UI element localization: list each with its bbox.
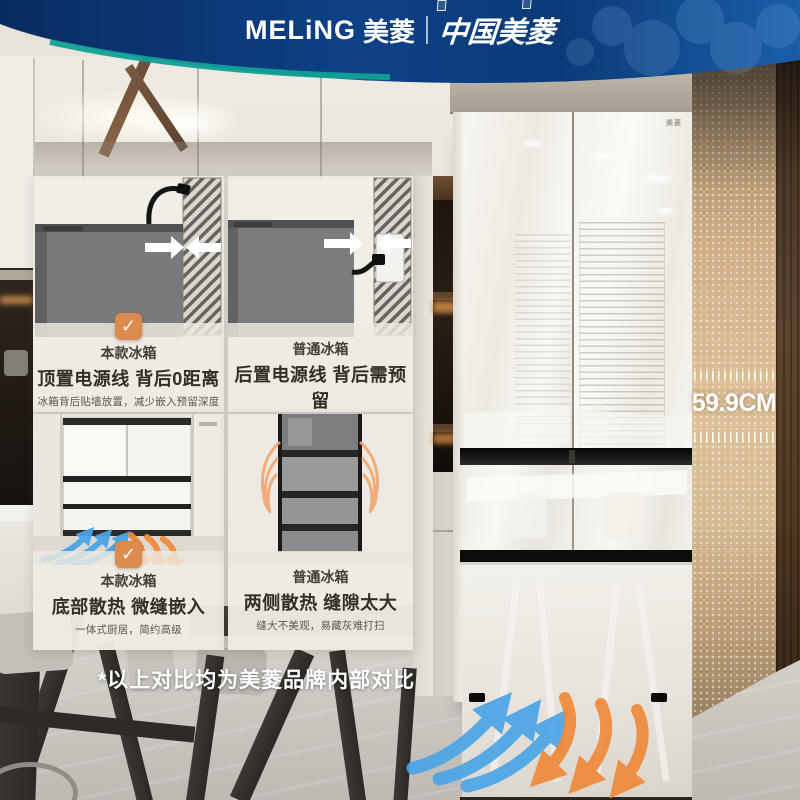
fridge-handle-strip [460, 550, 692, 562]
ruler-ticks-icon [694, 371, 774, 380]
compare-panel-rear-power: 普通冰箱 后置电源线 背后需预留 需预留电源线材及插座厚度 [228, 176, 413, 412]
counter-top [0, 505, 33, 521]
chair-reflection [603, 492, 645, 540]
depth-measurement: 59.9CM [690, 389, 778, 418]
side-panel-shadow [692, 60, 776, 190]
brand-sub-text: 中国美菱 [437, 17, 556, 49]
panel-title: 底部散热 微缝嵌入 [35, 593, 222, 619]
fridge-brand-logo: 美菱 [666, 118, 682, 128]
power-cord [149, 189, 179, 224]
wall-hatch [183, 178, 221, 335]
check-glyph: ✓ [121, 544, 136, 564]
ordinary-fridge [282, 414, 358, 552]
brand-logo-cn: 美菱 [363, 12, 415, 49]
check-icon: ✓ [115, 313, 142, 340]
disclaimer-text: *以上对比均为美菱品牌内部对比 [98, 664, 415, 694]
pendant-light-glow [130, 100, 240, 146]
brand-logo-en: MELiNG [245, 15, 356, 46]
cabinet-light [0, 296, 33, 304]
panel-label: 本款冰箱 [35, 343, 222, 363]
panel-title: 后置电源线 背后需预留 [230, 361, 411, 413]
panel-label: 本款冰箱 [35, 571, 222, 591]
light-reflection [639, 172, 675, 185]
panel-desc: 缝大不美观，易藏灰难打扫 [230, 618, 411, 633]
mid-wall [413, 176, 433, 696]
power-plug [372, 254, 385, 265]
hero-refrigerator: 美菱 [453, 112, 692, 702]
wall-shadow [18, 142, 432, 178]
warm-air-arrows [545, 698, 643, 782]
fridge-handle-gap [569, 450, 575, 463]
coffee-cabinet [0, 268, 33, 508]
fridge-side [453, 112, 462, 702]
compare-panel-bottom-heat: ✓ 本款冰箱 底部散热 微缝嵌入 一体式厨居，简约高级 [33, 414, 224, 650]
panel-caption: ✓ 本款冰箱 顶置电源线 背后0距离 冰箱背后贴墙放置，减少嵌入预留深度 [33, 323, 224, 412]
panel-caption: 普通冰箱 两侧散热 缝隙太大 缝大不美观，易藏灰难打扫 [228, 551, 413, 650]
light-reflection [519, 138, 547, 149]
light-reflection [589, 150, 621, 162]
illustration-side-heat [228, 414, 413, 565]
airflow-arrows [405, 672, 715, 798]
light-reflection [655, 206, 677, 216]
compare-panel-side-heat: 普通冰箱 两侧散热 缝隙太大 缝大不美观，易藏灰难打扫 [228, 414, 413, 650]
panel-desc: 一体式厨居，简约高级 [35, 622, 222, 637]
fridge-door-seam [572, 112, 574, 448]
check-icon: ✓ [115, 541, 142, 568]
compare-panel-top-power: ✓ 本款冰箱 顶置电源线 背后0距离 冰箱背后贴墙放置，减少嵌入预留深度 [33, 176, 224, 412]
coffee-machine [4, 350, 28, 376]
brand-sub-logo: 中国美菱 [437, 9, 557, 51]
panel-label: 普通冰箱 [230, 339, 411, 359]
left-cabinet [0, 58, 35, 270]
counter-reflection [464, 406, 570, 451]
fridge-soffit [450, 73, 692, 114]
illustration-rear-power-cord [228, 176, 413, 337]
panel-caption: ✓ 本款冰箱 底部散热 微缝嵌入 一体式厨居，简约高级 [33, 551, 224, 650]
chair-reflection [511, 494, 547, 538]
cool-air-arrows [413, 710, 555, 786]
logo-divider [426, 16, 428, 44]
product-page: 美菱 59.9CM [0, 0, 800, 800]
seal-mark-icon [522, 0, 532, 9]
brand-logo: MELiNG 美菱 中国美菱 [0, 9, 800, 51]
ruler-ticks-icon [694, 432, 774, 443]
panel-title: 两侧散热 缝隙太大 [230, 589, 411, 615]
check-glyph: ✓ [121, 316, 136, 336]
fridge-handle-strip [460, 448, 692, 465]
seal-mark-icon [437, 0, 447, 11]
panel-label: 普通冰箱 [230, 567, 411, 587]
cabinet-shelf [0, 270, 33, 280]
panel-desc: 冰箱背后贴墙放置，减少嵌入预留深度 [35, 394, 222, 409]
wood-door-edge [776, 60, 800, 674]
panel-caption: 普通冰箱 后置电源线 背后需预留 需预留电源线材及插座厚度 [228, 323, 413, 412]
panel-title: 顶置电源线 背后0距离 [35, 365, 222, 391]
